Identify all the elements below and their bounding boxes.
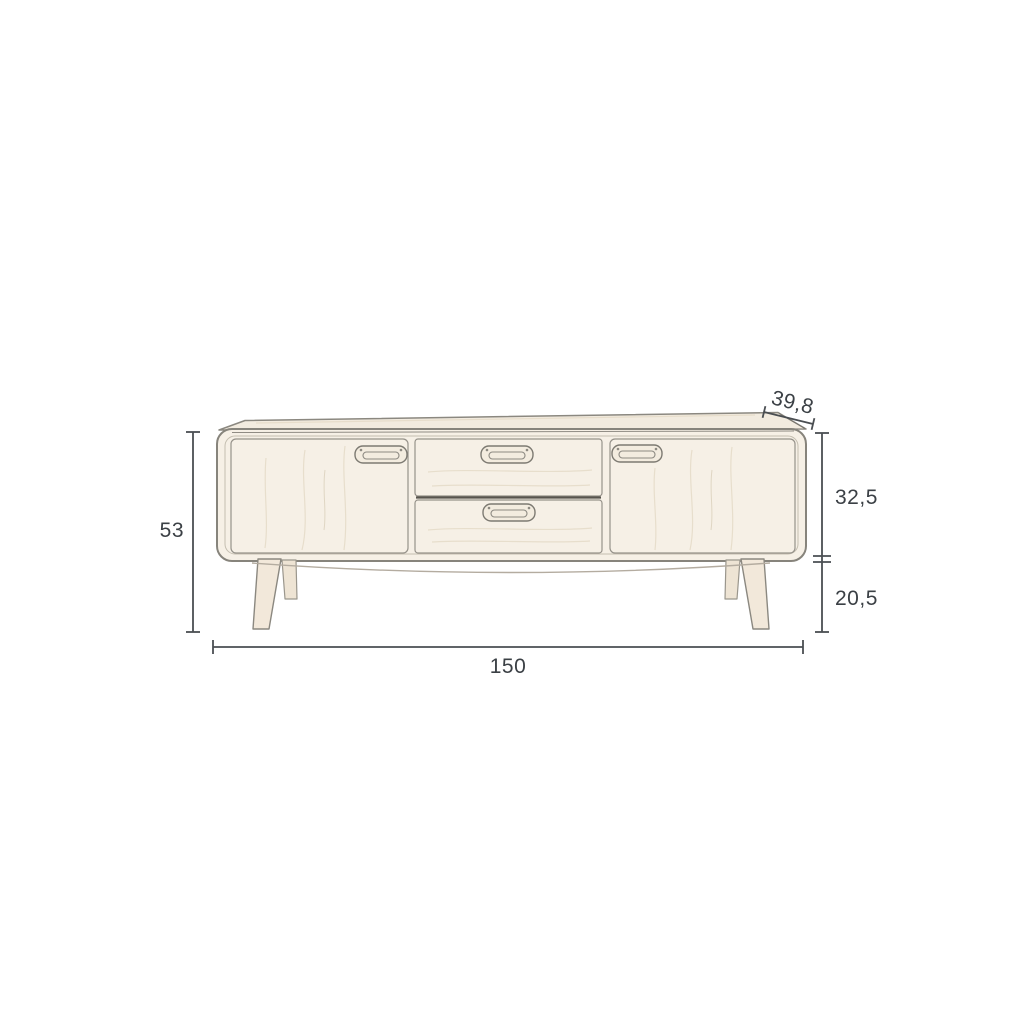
- front-left-leg: [253, 559, 281, 629]
- height-label: 53: [160, 519, 184, 542]
- height-dimension: 53: [160, 432, 200, 632]
- product-dimension-diagram: 53 150 39,8 32,5: [0, 0, 1024, 1024]
- leg-height-dimension: 20,5: [815, 587, 878, 632]
- sideboard-drawing: [217, 413, 806, 630]
- diagram-svg: 53 150 39,8 32,5: [0, 0, 1024, 1024]
- width-label: 150: [490, 655, 527, 678]
- top-drawer-handle: [481, 446, 533, 463]
- underside-shadow-curve: [252, 563, 770, 573]
- right-door-handle: [612, 445, 662, 462]
- front-right-leg: [741, 559, 769, 629]
- left-door-handle: [355, 446, 407, 463]
- body-height-label: 32,5: [835, 486, 878, 509]
- bottom-drawer-handle: [483, 504, 535, 521]
- leg-height-label: 20,5: [835, 587, 878, 610]
- width-dimension: 150: [213, 640, 803, 678]
